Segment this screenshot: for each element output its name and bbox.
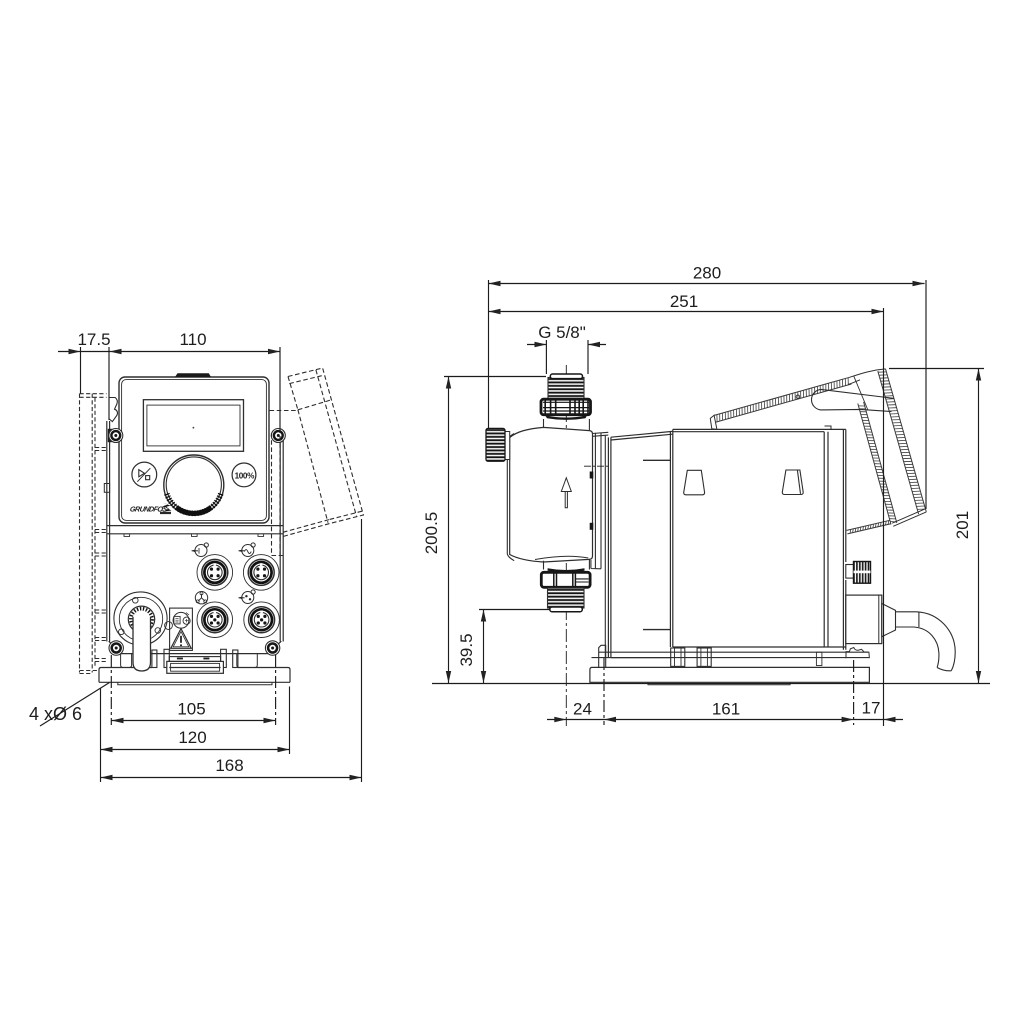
- svg-text:4 xØ 6: 4 xØ 6: [29, 704, 82, 724]
- svg-text:100%: 100%: [235, 471, 255, 480]
- svg-text:251: 251: [670, 292, 698, 311]
- svg-text:39.5: 39.5: [457, 633, 476, 666]
- svg-text:17: 17: [862, 699, 881, 718]
- svg-text:201: 201: [953, 511, 972, 539]
- svg-text:17.5: 17.5: [77, 330, 110, 349]
- svg-text:200.5: 200.5: [422, 512, 441, 555]
- svg-text:G 5/8": G 5/8": [538, 323, 586, 342]
- svg-text:161: 161: [712, 700, 740, 719]
- svg-text:168: 168: [215, 756, 243, 775]
- svg-text:280: 280: [693, 264, 721, 283]
- svg-text:105: 105: [177, 700, 205, 719]
- svg-text:24: 24: [573, 700, 592, 719]
- svg-text:120: 120: [178, 728, 206, 747]
- svg-text:110: 110: [179, 330, 206, 349]
